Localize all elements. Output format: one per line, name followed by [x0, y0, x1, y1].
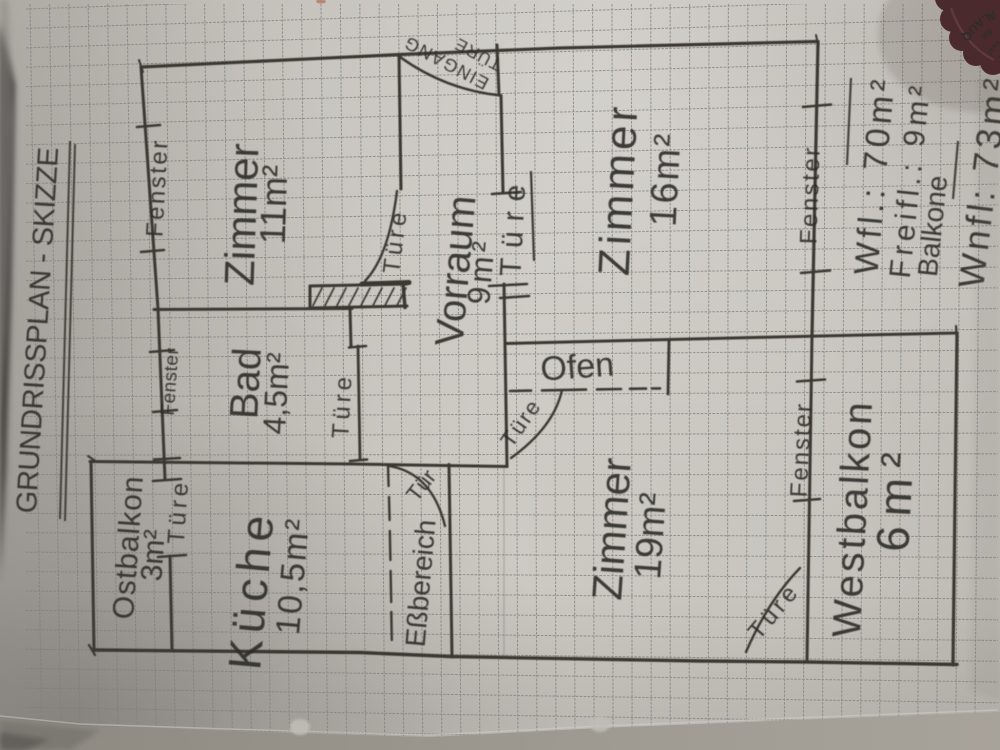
svg-text:Fenster: Fenster: [786, 401, 818, 498]
svg-text:Eßbereich: Eßbereich: [400, 518, 442, 648]
svg-text:Ofen: Ofen: [539, 346, 615, 389]
svg-text:6m²: 6m²: [866, 441, 924, 553]
svg-text:Fenster: Fenster: [158, 347, 184, 416]
svg-text:Türe: Türe: [743, 577, 806, 644]
svg-text:Türe: Türe: [495, 394, 546, 452]
svg-text:11m²: 11m²: [252, 164, 296, 245]
svg-text:Türe: Türe: [378, 207, 413, 275]
svg-text:Zimmer: Zimmer: [590, 102, 648, 277]
svg-text:Türe: Türe: [494, 174, 532, 277]
svg-text:Fenster: Fenster: [795, 145, 825, 245]
svg-text:16m²: 16m²: [643, 131, 690, 228]
svg-text:Türe: Türe: [163, 478, 194, 545]
svg-text:Fenster: Fenster: [141, 138, 173, 238]
svg-text:19m²: 19m²: [627, 492, 675, 581]
svg-text:4,5m²: 4,5m²: [256, 351, 296, 435]
svg-text:Türe: Türe: [327, 372, 357, 439]
svg-text:GRUNDRISSPLAN - SKIZZE: GRUNDRISSPLAN - SKIZZE: [11, 147, 65, 514]
